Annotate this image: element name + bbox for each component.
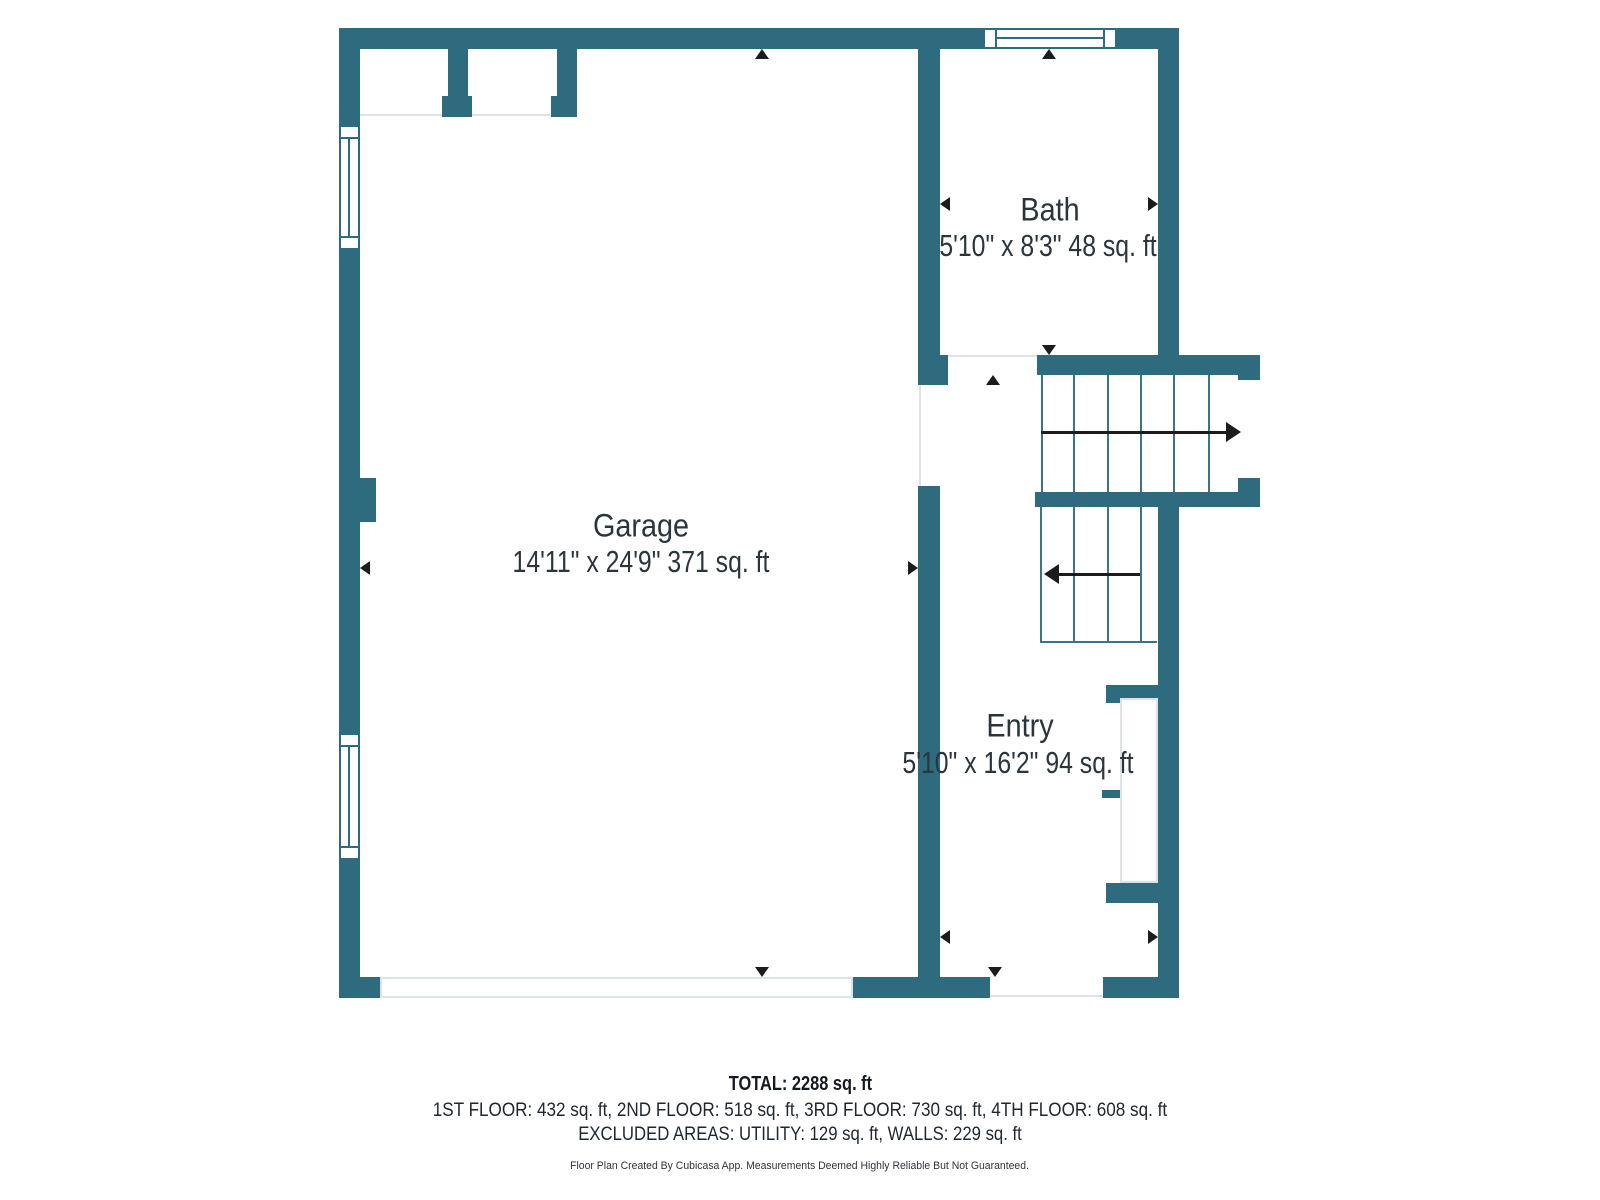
wall-garage-protrusion — [360, 478, 376, 522]
bath-room-label: Bath — [1020, 192, 1079, 229]
wall-post — [557, 49, 577, 96]
entry-dim-arrow-left-icon — [940, 930, 950, 944]
stair-up-arrow-shaft — [1041, 431, 1227, 434]
garage-room-label: Garage — [593, 508, 689, 545]
entry-dim-arrow-up-icon — [986, 375, 1000, 385]
entry-dim-arrow-down-icon — [988, 967, 1002, 977]
wall-right-lower — [1158, 492, 1179, 998]
entry-front-door-recess — [1120, 698, 1158, 883]
interior-opening-line — [919, 385, 921, 486]
window-left-2 — [339, 733, 360, 860]
bath-door-threshold-line — [948, 355, 1037, 357]
garage-dim-arrow-right-icon — [908, 561, 918, 575]
garage-room-dimensions: 14'11" x 24'9" 371 sq. ft — [513, 544, 770, 580]
summary-credit-note: Floor Plan Created By Cubicasa App. Meas… — [4, 1158, 1596, 1174]
bath-dim-arrow-up-icon — [1042, 49, 1056, 59]
entry-room-label: Entry — [986, 708, 1053, 745]
wall-bath-bottom — [1037, 355, 1260, 375]
wall-post-foot — [442, 96, 472, 117]
stair-tread-line — [1140, 507, 1142, 641]
bath-room-dimensions: 5'10" x 8'3" 48 sq. ft — [939, 228, 1156, 264]
window-left-1 — [339, 125, 360, 250]
entry-bottom-door-line — [990, 995, 1103, 997]
wall-stair-mid-band — [1035, 492, 1260, 507]
stair-up-arrow-right-icon — [1226, 422, 1241, 442]
window-top-bath — [983, 28, 1117, 49]
wall-stairwell-stub-top — [1238, 355, 1260, 380]
garage-door-panel — [380, 977, 853, 998]
wall-bottom-right — [1103, 977, 1179, 998]
bath-dim-arrow-left-icon — [940, 197, 950, 211]
entry-door-jamb-middle — [1102, 790, 1120, 798]
wall-bottom-middle — [853, 977, 990, 998]
garage-dim-arrow-left-icon — [360, 561, 370, 575]
entry-dim-arrow-right-icon — [1148, 930, 1158, 944]
bath-dim-arrow-down-icon — [1042, 345, 1056, 355]
garage-recess-line — [360, 114, 442, 116]
wall-right-upper — [1158, 28, 1179, 375]
stair-down-arrow-shaft — [1059, 573, 1140, 576]
wall-bath-door-stub — [940, 355, 948, 385]
summary-excluded-areas: EXCLUDED AREAS: UTILITY: 129 sq. ft, WAL… — [4, 1122, 1596, 1148]
wall-post-foot — [551, 96, 577, 117]
entry-room-dimensions: 5'10" x 16'2" 94 sq. ft — [902, 745, 1133, 781]
wall-post — [448, 49, 468, 96]
summary-total: TOTAL: 2288 sq. ft — [4, 1071, 1596, 1097]
garage-dim-arrow-down-icon — [755, 967, 769, 977]
stair-down-arrow-left-icon — [1044, 564, 1059, 584]
floor-plan: Garage 14'11" x 24'9" 371 sq. ft Bath 5'… — [0, 0, 1600, 1200]
wall-interior-upper — [918, 28, 940, 385]
wall-stairwell-stub-bottom — [1238, 478, 1260, 507]
entry-door-jamb-bottom — [1106, 883, 1158, 903]
garage-dim-arrow-up-icon — [755, 49, 769, 59]
wall-bottom-left-foot — [339, 977, 380, 998]
wall-interior-lower — [918, 486, 940, 998]
summary-floor-areas: 1ST FLOOR: 432 sq. ft, 2ND FLOOR: 518 sq… — [4, 1098, 1596, 1124]
garage-recess-line — [472, 114, 551, 116]
bath-dim-arrow-right-icon — [1148, 197, 1158, 211]
